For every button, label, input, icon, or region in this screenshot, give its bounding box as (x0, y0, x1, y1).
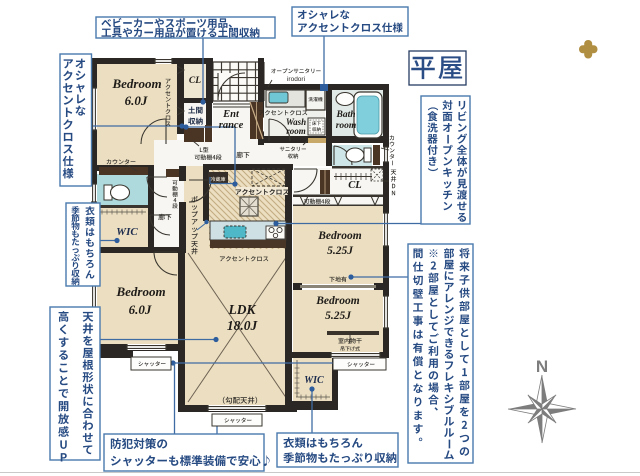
svg-text:6.0J: 6.0J (129, 302, 152, 317)
svg-text:N: N (536, 357, 548, 376)
svg-text:Ent: Ent (222, 109, 240, 120)
svg-text:18.0J: 18.0J (227, 318, 259, 333)
svg-text:Bath: Bath (335, 110, 355, 120)
svg-text:Bedroom: Bedroom (317, 230, 362, 242)
svg-text:WIC: WIC (116, 226, 138, 238)
svg-text:5.25J: 5.25J (325, 310, 352, 322)
svg-text:Bedroom: Bedroom (111, 76, 161, 91)
svg-text:WIC: WIC (304, 375, 324, 386)
svg-text:6.0J: 6.0J (125, 93, 148, 108)
svg-text:Bedroom: Bedroom (315, 295, 360, 307)
svg-text:CL: CL (348, 180, 361, 191)
svg-text:room: room (336, 121, 357, 131)
svg-text:room: room (286, 126, 306, 136)
svg-text:irodori: irodori (287, 76, 305, 83)
svg-text:LDK: LDK (228, 302, 257, 317)
svg-text:CL: CL (189, 76, 201, 86)
svg-text:Bedroom: Bedroom (115, 284, 165, 299)
svg-text:5.25J: 5.25J (327, 245, 354, 257)
svg-text:rance: rance (219, 120, 244, 131)
